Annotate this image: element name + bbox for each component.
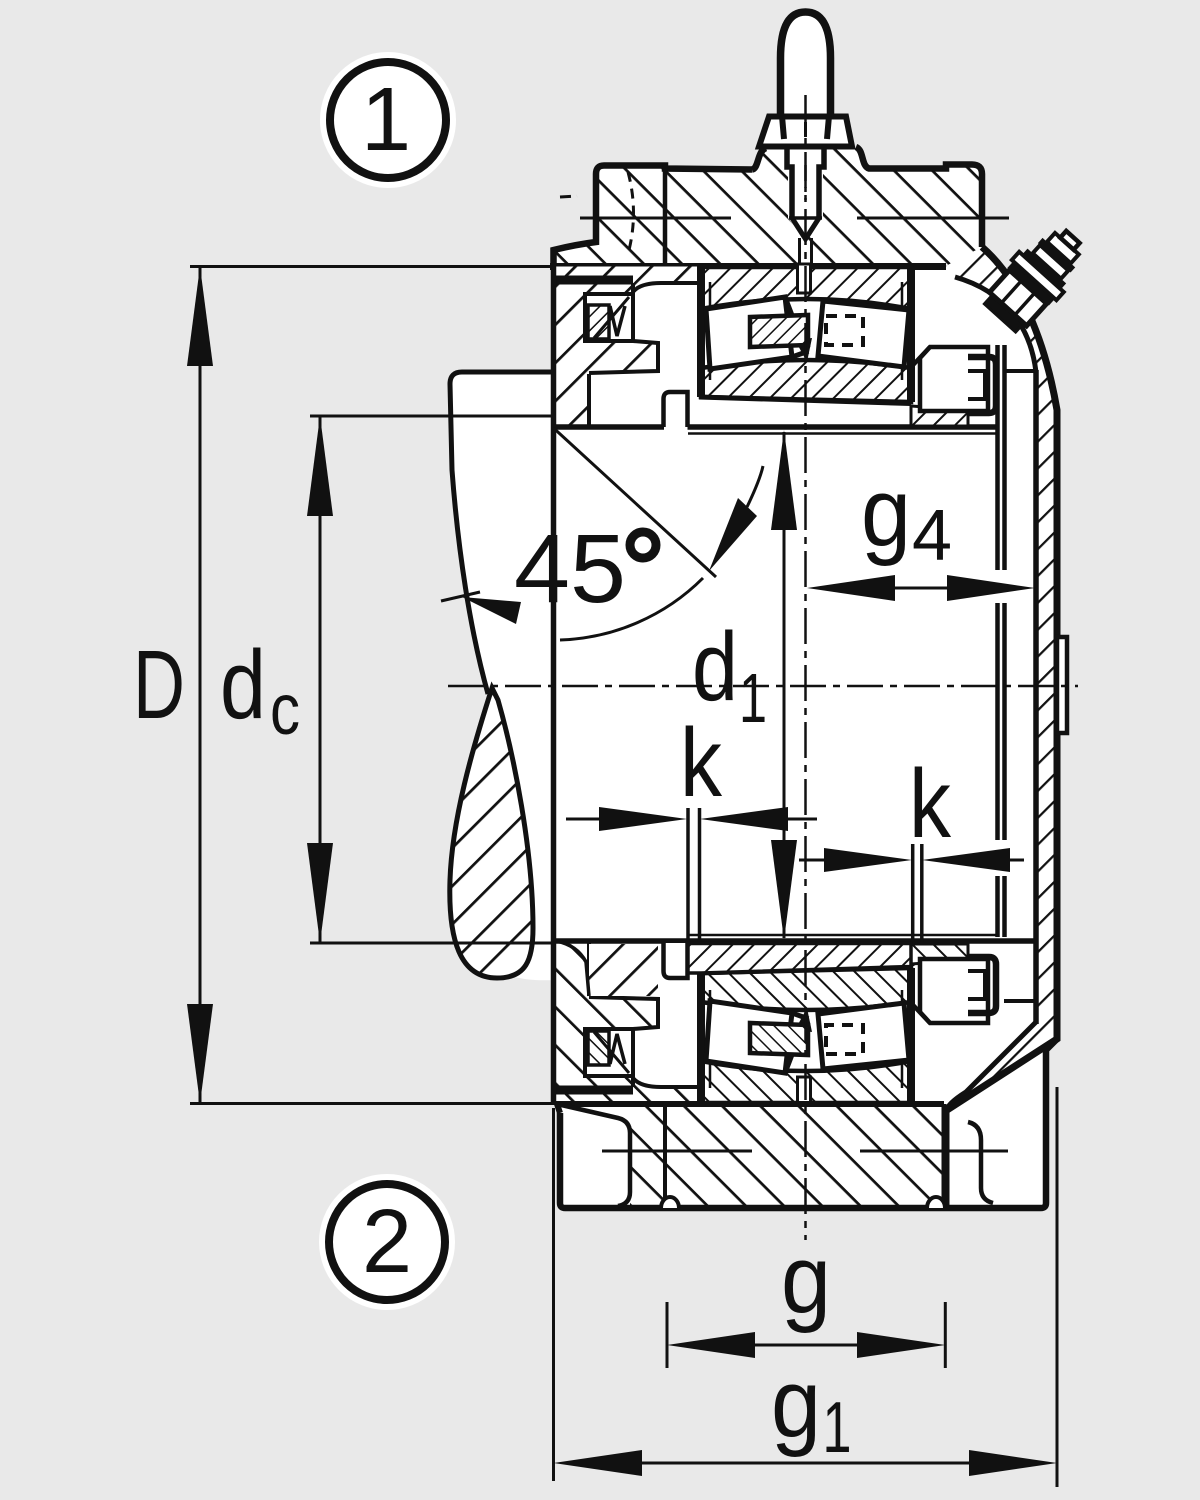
svg-text:g: g: [781, 1225, 831, 1334]
svg-text:1: 1: [361, 70, 411, 170]
svg-text:2: 2: [362, 1192, 412, 1292]
svg-text:d: d: [692, 612, 738, 721]
svg-text:45: 45: [514, 514, 626, 623]
svg-text:k: k: [909, 749, 951, 858]
svg-text:c: c: [270, 670, 300, 750]
svg-text:k: k: [680, 708, 722, 817]
svg-text:g: g: [861, 458, 911, 567]
svg-text:1: 1: [739, 659, 767, 737]
svg-text:D: D: [133, 630, 185, 739]
svg-text:d: d: [220, 630, 266, 739]
svg-text:4: 4: [912, 496, 952, 576]
svg-text:g: g: [771, 1349, 821, 1458]
svg-text:1: 1: [823, 1388, 852, 1468]
